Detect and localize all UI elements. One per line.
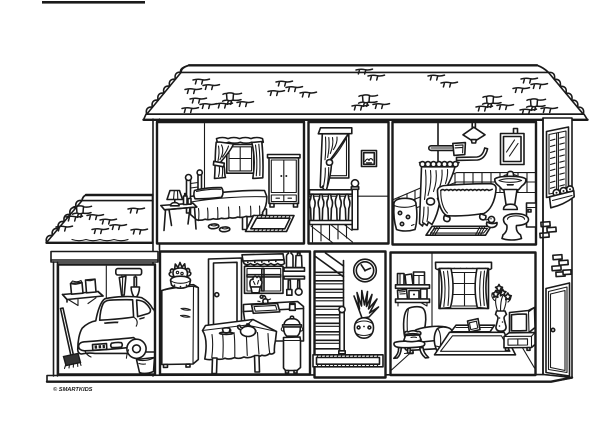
svg-text:© SMARTKIDS: © SMARTKIDS: [53, 386, 93, 393]
